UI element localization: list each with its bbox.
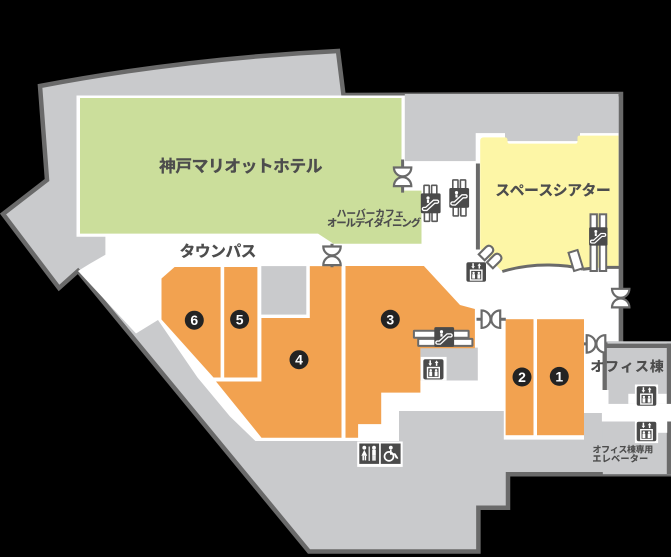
svg-text:3: 3 (386, 311, 394, 327)
svg-text:1: 1 (555, 368, 563, 384)
svg-text:5: 5 (236, 311, 244, 327)
svg-text:6: 6 (190, 312, 198, 328)
svg-text:4: 4 (295, 352, 303, 368)
svg-text:2: 2 (518, 369, 526, 385)
